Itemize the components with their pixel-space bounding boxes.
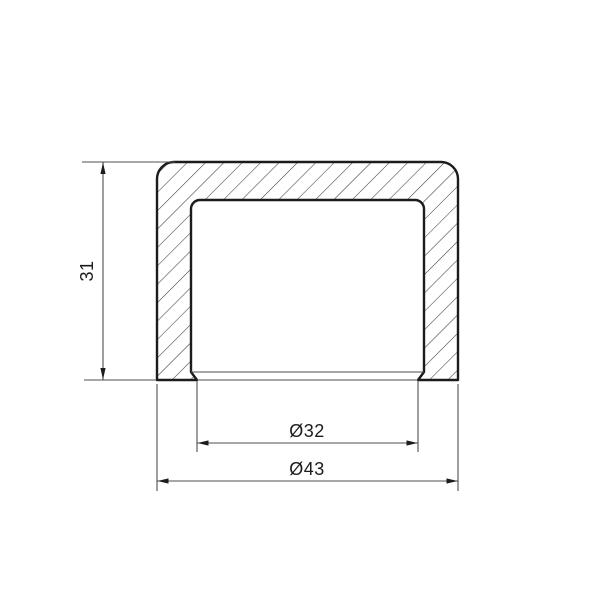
height-label: 31: [77, 260, 97, 281]
sheet-background: [0, 0, 600, 600]
technical-drawing-canvas: 31 Ø32 Ø43: [0, 0, 600, 600]
cap-section-drawing: 31 Ø32 Ø43: [0, 0, 600, 600]
outer-diameter-label: Ø43: [289, 459, 325, 479]
inner-diameter-label: Ø32: [289, 421, 325, 441]
